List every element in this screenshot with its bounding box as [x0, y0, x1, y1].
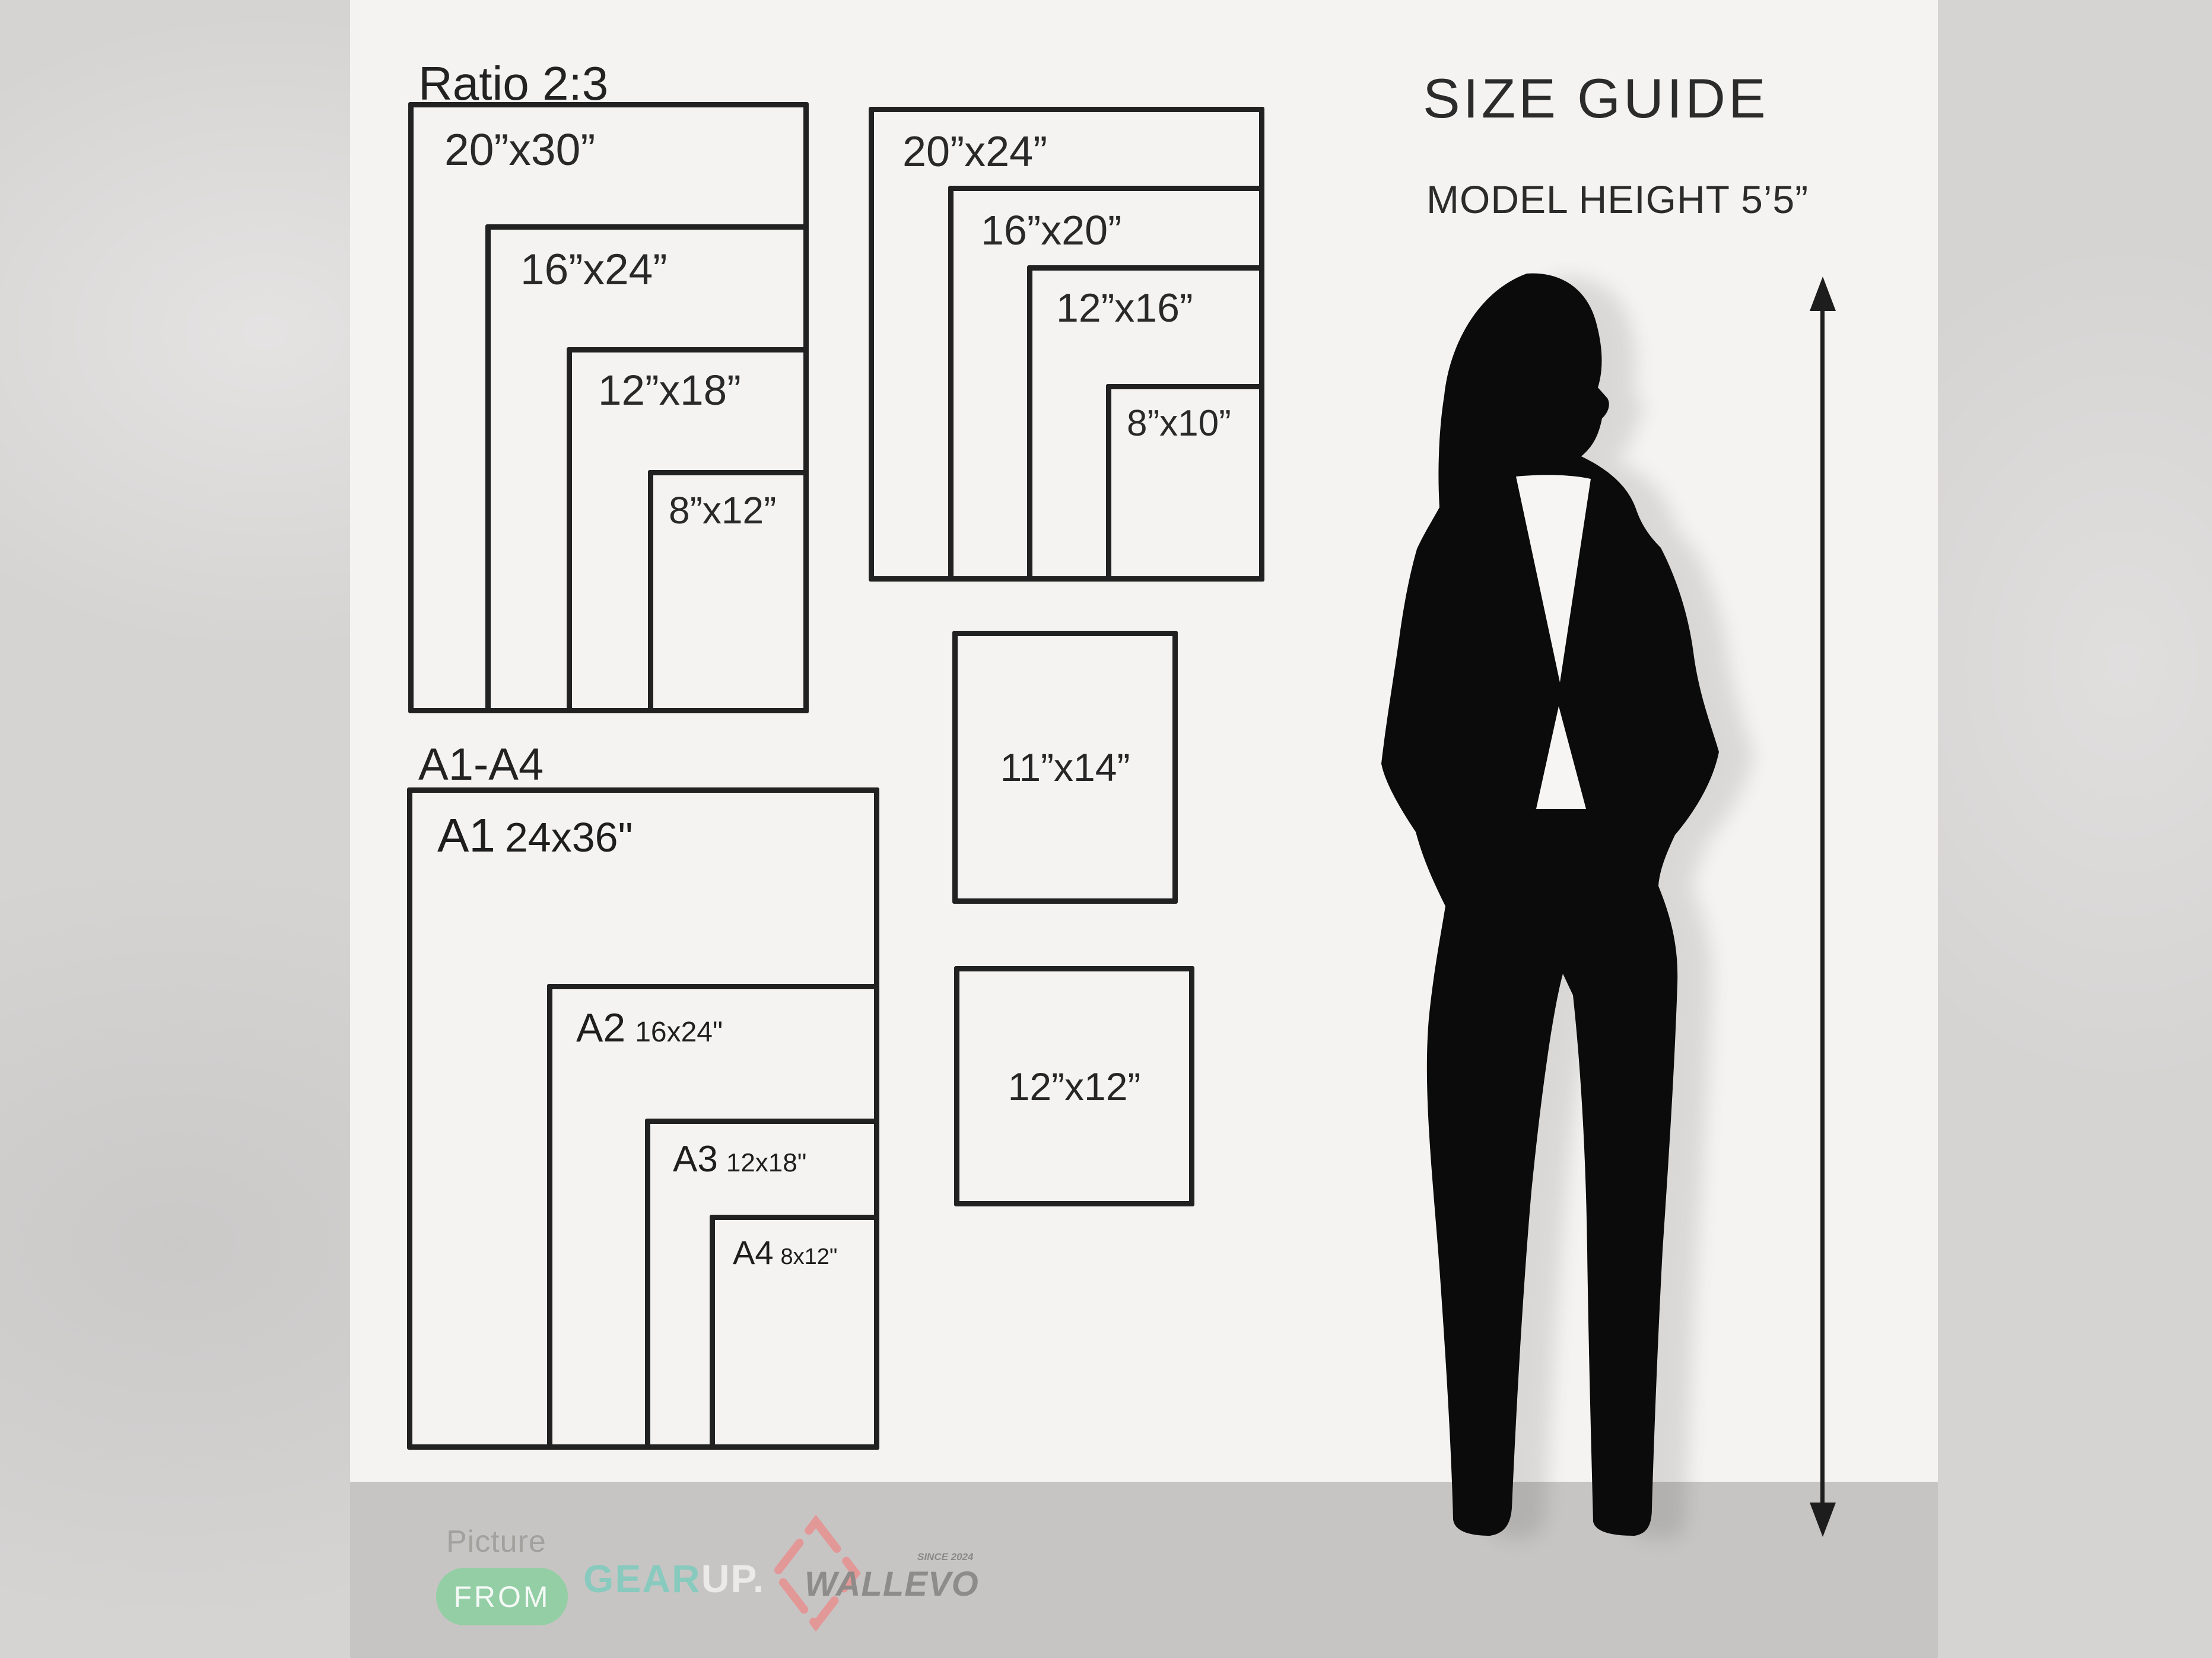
- box-a4: A4 8x12": [710, 1215, 879, 1450]
- picture-from-label: Picture: [446, 1524, 546, 1559]
- size-guide-infographic: Ratio 2:3 20”x30” 16”x24” 12”x18” 8”x12”…: [0, 0, 2212, 1658]
- label-a1: A1: [437, 808, 495, 863]
- label-a3: A3: [673, 1138, 718, 1180]
- gearup-logo-gear: GEAR: [583, 1557, 701, 1600]
- height-arrow-down-icon: [1810, 1503, 1836, 1537]
- label-a2-size: 16x24": [635, 1016, 723, 1049]
- label-12x16: 12”x16”: [1056, 285, 1193, 331]
- label-a3-size: 12x18": [726, 1148, 807, 1178]
- label-8x10: 8”x10”: [1127, 402, 1231, 444]
- from-badge: FROM: [436, 1568, 568, 1625]
- label-20x24: 20”x24”: [902, 128, 1047, 176]
- box-8x12: 8”x12”: [648, 470, 809, 713]
- label-20x30: 20”x30”: [444, 124, 595, 175]
- from-badge-text: FROM: [453, 1580, 550, 1614]
- wallevo-logo: WALLEVO: [805, 1564, 979, 1604]
- label-12x18: 12”x18”: [598, 367, 741, 415]
- wallevo-since-label: SINCE 2024: [917, 1551, 974, 1563]
- height-arrow-up-icon: [1810, 277, 1836, 311]
- label-16x20: 16”x20”: [981, 207, 1121, 254]
- gearup-logo-up: UP.: [701, 1557, 765, 1600]
- a-series-title: A1-A4: [418, 739, 544, 790]
- label-a1-size: 24x36": [505, 814, 633, 861]
- box-11x14: 11”x14”: [952, 631, 1178, 904]
- page-title: SIZE GUIDE: [1423, 66, 1769, 131]
- model-silhouette-icon: [1326, 270, 1744, 1537]
- height-arrow-line: [1820, 300, 1825, 1510]
- label-8x12: 8”x12”: [669, 488, 776, 532]
- label-a2: A2: [576, 1005, 625, 1051]
- label-16x24: 16”x24”: [520, 245, 668, 294]
- label-a4: A4: [733, 1233, 774, 1272]
- model-height-label: MODEL HEIGHT 5’5”: [1426, 177, 1809, 222]
- label-12x12: 12”x12”: [1008, 1064, 1141, 1109]
- gearup-logo: GEARUP.: [583, 1556, 765, 1601]
- label-11x14: 11”x14”: [1000, 745, 1130, 790]
- box-12x12: 12”x12”: [954, 966, 1194, 1206]
- label-a4-size: 8x12": [781, 1244, 838, 1270]
- box-8x10: 8”x10”: [1106, 384, 1264, 582]
